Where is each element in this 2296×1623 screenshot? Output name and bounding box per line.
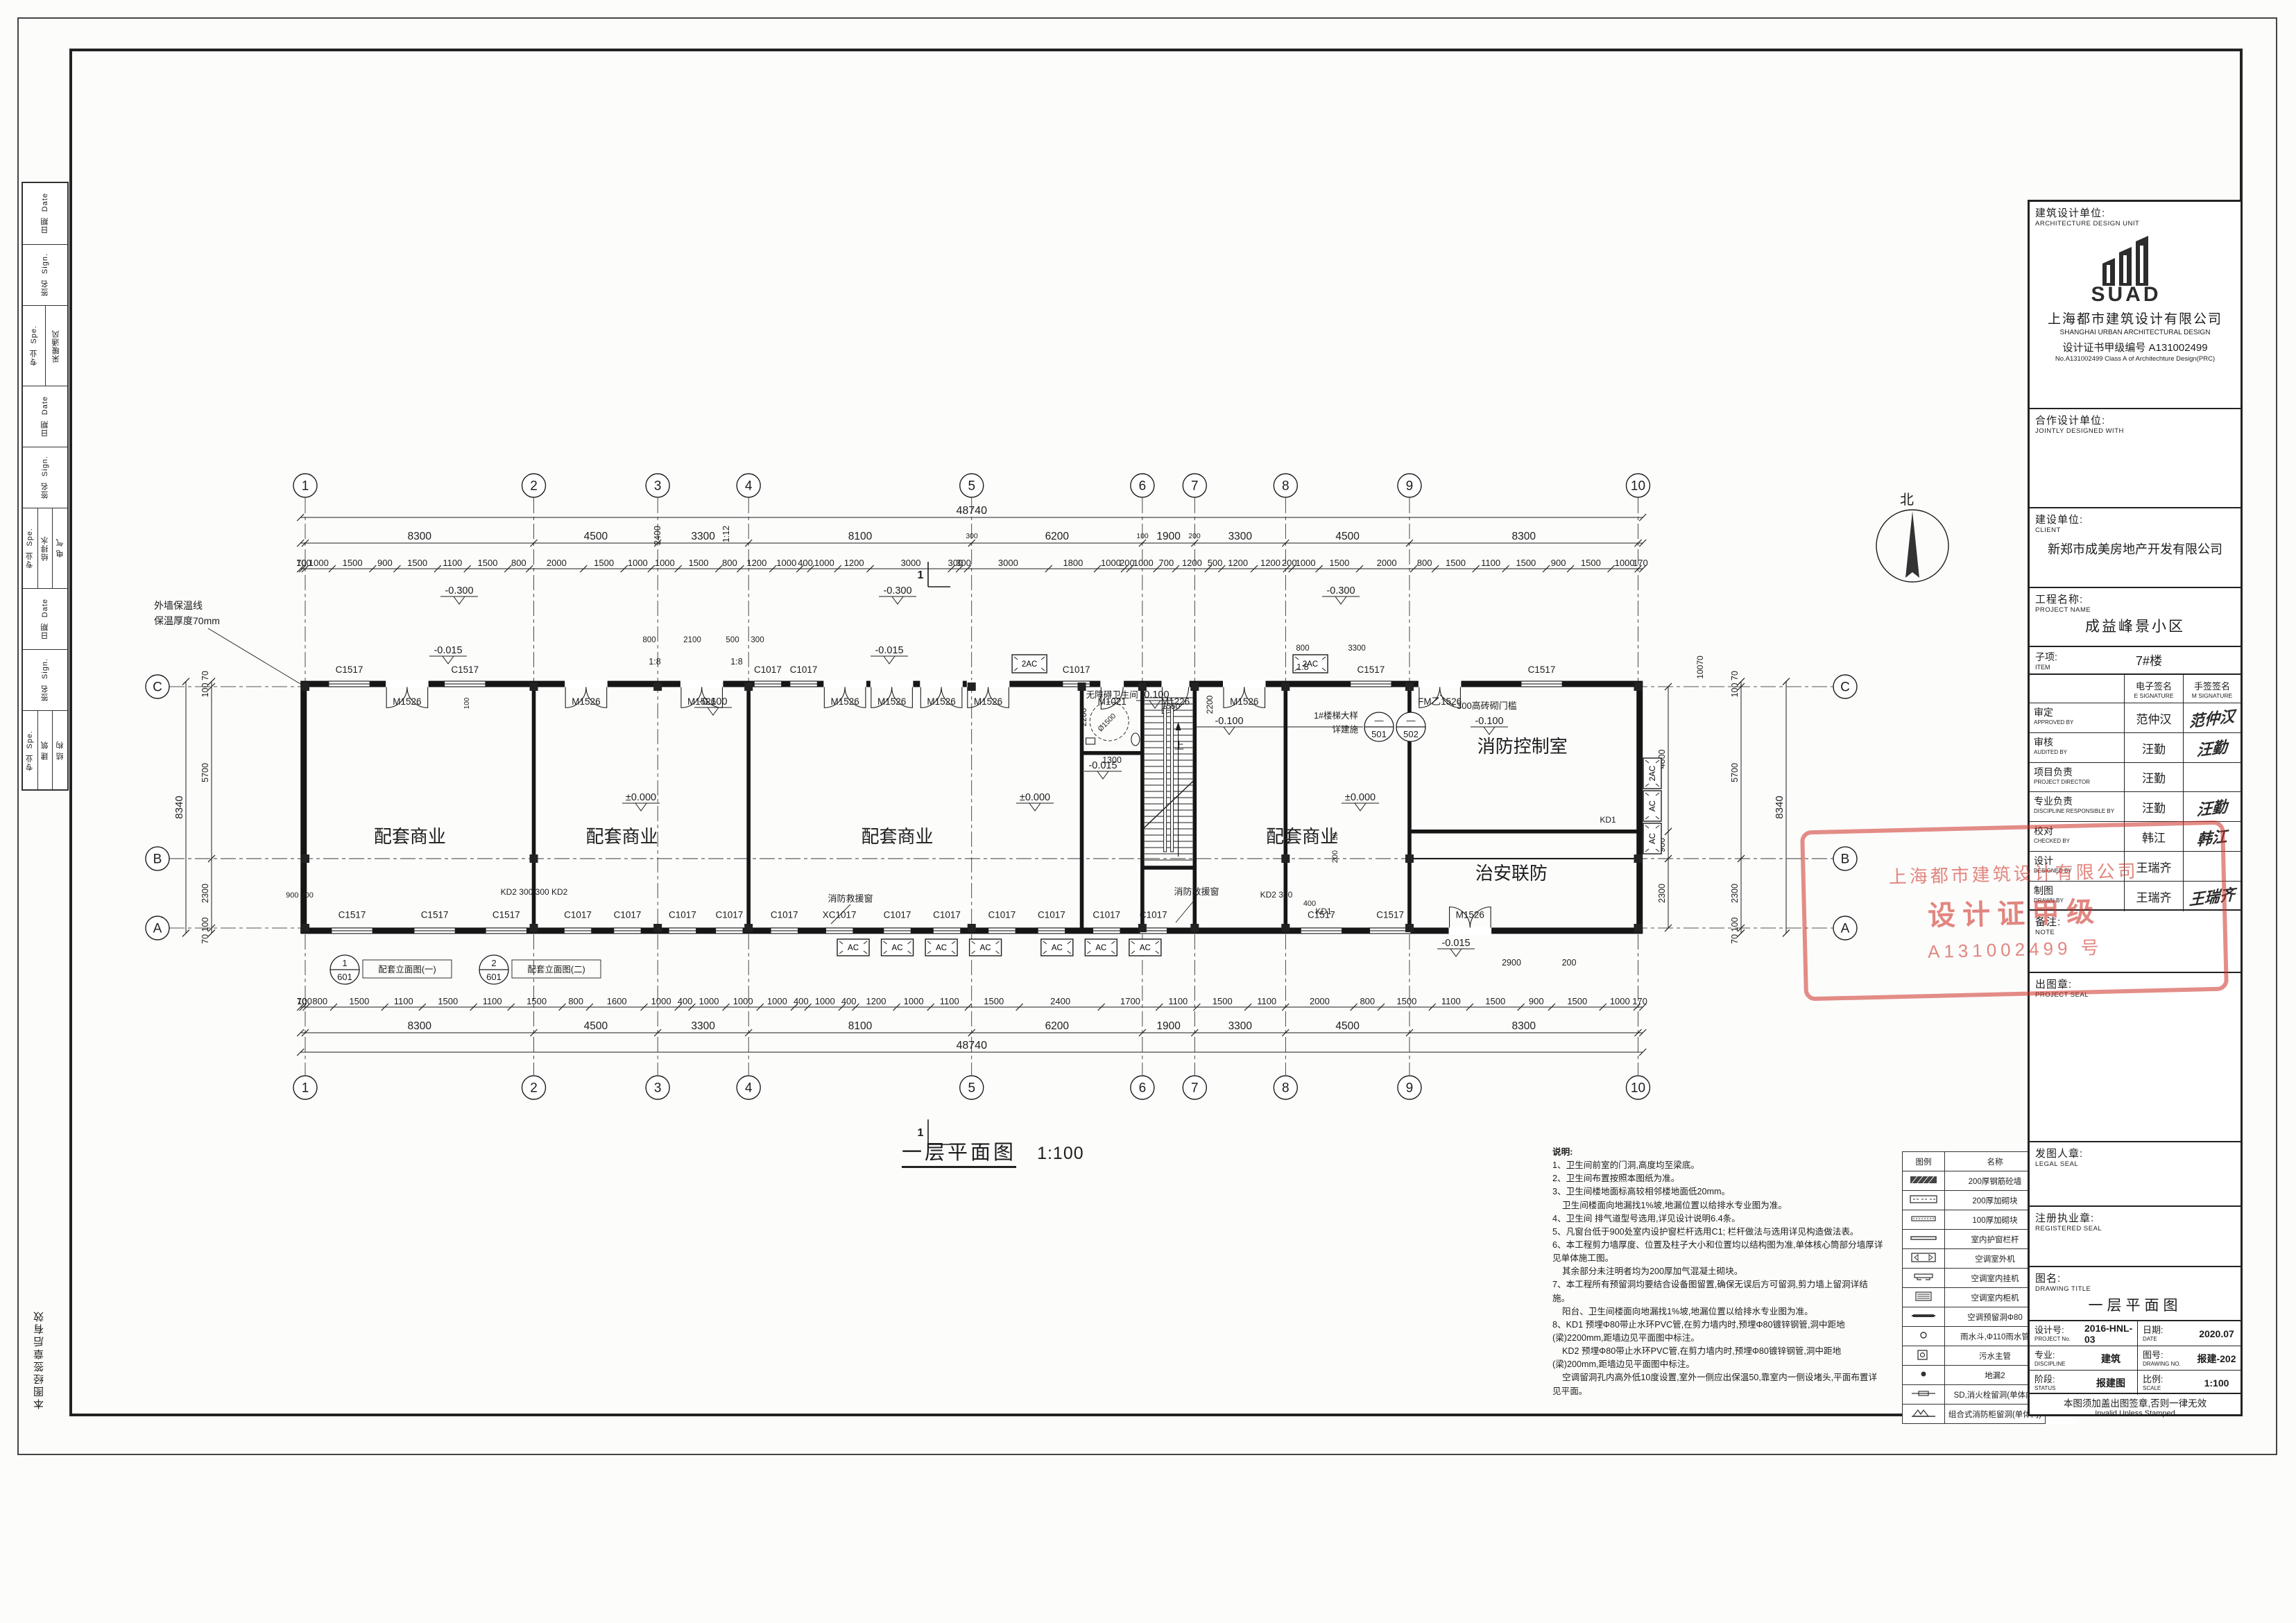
door-gap	[1419, 680, 1462, 688]
door-label: M1526	[1230, 696, 1258, 707]
margin-cell-text: 电 气	[55, 538, 66, 558]
info-label-en: SCALE	[2143, 1385, 2193, 1391]
callout-bottom: 601	[486, 972, 502, 982]
annotation-text: 300	[751, 636, 764, 644]
svg-text:AC: AC	[892, 944, 903, 952]
grid-number: 4	[745, 479, 753, 494]
tb-project-label: 工程名称:	[2030, 588, 2241, 606]
margin-cell: 签名 Sign.	[23, 650, 67, 710]
level-text: -0.100	[1140, 689, 1169, 701]
margin-cell-text: 结 构	[55, 741, 66, 760]
sig-m-signature: 王瑞齐	[2188, 882, 2235, 910]
svg-text:AC: AC	[1649, 800, 1657, 811]
info-label-en: DRAWING NO.	[2143, 1361, 2193, 1367]
suad-logo: SUAD	[2030, 232, 2241, 307]
info-value: 1:100	[2193, 1371, 2241, 1395]
column	[301, 682, 309, 691]
info-value: 2020.07	[2193, 1321, 2241, 1346]
door-label: M1526	[877, 696, 906, 707]
dim-text: 70 100	[200, 918, 210, 944]
margin-note-text: 本图经签章后有效	[32, 1309, 46, 1409]
column	[653, 682, 662, 691]
grid-number: 10	[1631, 1081, 1645, 1096]
sd-icon	[1903, 1385, 1945, 1405]
wall-right	[1636, 682, 1643, 934]
annotation-text: KD2 300 300 KD2	[501, 887, 568, 897]
grid-number: 3	[654, 1081, 662, 1096]
dim-span-text: 3300	[691, 1020, 715, 1032]
dim-text: 100	[297, 996, 312, 1006]
drawing-sheet: 日期 Date签名 Sign.专业 Spe.采暖通风日期 Date签名 Sign…	[0, 0, 2296, 1623]
dim-text: 400	[678, 996, 693, 1006]
margin-cell: 采暖通风	[45, 306, 68, 386]
margin-band: 签名 Sign.	[23, 244, 67, 305]
column	[1634, 855, 1642, 863]
dim-span-text: 4500	[1335, 531, 1360, 542]
dim-text: 3000	[998, 558, 1018, 568]
margin-cell-text: 签名 Sign.	[40, 253, 51, 296]
dim-text: 2300	[1657, 884, 1667, 903]
callout-top: 1	[342, 958, 347, 968]
column	[1138, 924, 1147, 932]
window-label: C1017	[669, 909, 696, 920]
margin-band: 专业 Spe.给排水电 气	[23, 508, 67, 588]
sig-row-discipline-responsible-by: 专业负责DISCIPLINE RESPONSIBLE BY汪勤汪勤	[2030, 791, 2241, 822]
tb-project-en: PROJECT NAME	[2030, 606, 2241, 614]
stair-break	[1143, 780, 1194, 829]
tb-note: 备注: NOTE	[2030, 909, 2241, 972]
grid-number: 7	[1191, 1081, 1199, 1096]
svg-text:AC: AC	[1140, 944, 1151, 952]
door-label: M1526	[572, 696, 600, 707]
tb-joint-label: 合作设计单位:	[2030, 409, 2241, 427]
tb-reg-en: REGISTERED SEAL	[2030, 1225, 2241, 1233]
annotation-text: 200	[1562, 958, 1577, 968]
annotation-text: 2200	[1079, 707, 1088, 726]
dim-text: 1500	[1396, 996, 1416, 1006]
level-text: ±0.000	[1345, 792, 1376, 803]
dim-text: 1600	[607, 996, 627, 1006]
sig-label-en: DISCIPLINE RESPONSIBLE BY	[2034, 808, 2120, 814]
window-label: C1517	[492, 909, 520, 920]
svg-text:AC: AC	[936, 944, 947, 952]
annotation-text: 1:12	[721, 526, 731, 542]
level-text: -0.300	[445, 585, 473, 596]
sig-row-designed-by: 设计DESIGNED BY王瑞齐	[2030, 851, 2241, 882]
sig-label: 校对	[2034, 824, 2120, 838]
annotation-text: 消防救援窗	[1174, 886, 1219, 897]
window-label: C1017	[884, 909, 911, 920]
info-value: 报建图	[2084, 1371, 2137, 1395]
level-text: -0.015	[434, 645, 462, 656]
column	[301, 924, 309, 932]
dim-text: 1500	[1581, 558, 1601, 568]
door-label: FM乙1526	[1418, 696, 1462, 707]
margin-cell: 建 筑	[37, 711, 53, 791]
margin-cell-text: 专业 Spe.	[28, 325, 40, 366]
margin-band: 日期 Date	[23, 386, 67, 447]
door-gap	[1100, 680, 1124, 688]
tb-note-en: NOTE	[2030, 929, 2241, 936]
tb-item: 子项: ITEM 7#楼	[2030, 646, 2241, 673]
wc-toilet	[1131, 733, 1140, 746]
column	[1190, 924, 1199, 932]
window-label: C1517	[1376, 909, 1404, 920]
column	[744, 682, 753, 691]
dim-text: 3000	[901, 558, 921, 568]
tb-cert: 设计证书甲级编号 A131002499	[2030, 340, 2241, 354]
sig-m-signature: 韩江	[2196, 824, 2227, 850]
window-label: C1017	[790, 664, 818, 675]
sig-header-row: 电子签名E SIGNATURE手签签名M SIGNATURE	[2030, 675, 2241, 703]
info-label: 图号:	[2143, 1348, 2193, 1361]
margin-band: 签名 Sign.	[23, 447, 67, 508]
annotation-text: 2200	[1205, 695, 1215, 714]
dim-text: 1000	[1615, 558, 1635, 568]
tb-title-en: DRAWING TITLE	[2030, 1285, 2241, 1293]
dim-span-text: 1900	[1156, 531, 1181, 542]
dim-text: 5700	[200, 763, 210, 782]
column	[744, 924, 753, 932]
dim-text: 1500	[1567, 996, 1587, 1006]
margin-band: 专业 Spe.建 筑结 构	[23, 710, 67, 791]
grid-number: 8	[1282, 1081, 1290, 1096]
tb-signatures: 电子签名E SIGNATURE手签签名M SIGNATURE审定APPROVED…	[2030, 673, 2241, 909]
margin-cell: 日期 Date	[23, 386, 67, 447]
door-label: M1526	[393, 696, 421, 707]
dim-text: 1000	[1101, 558, 1121, 568]
ac-unit-icon: AC	[925, 939, 957, 956]
tb-title-value: 一层平面图	[2030, 1294, 2241, 1315]
dim-text: 100 70	[1730, 671, 1740, 697]
room-label: 治安联防	[1475, 863, 1548, 884]
sig-m-signature: 范仲汉	[2188, 704, 2235, 732]
column	[530, 855, 538, 863]
dim-text: 70 100	[1730, 918, 1740, 944]
dim-text: 1100	[1441, 996, 1461, 1006]
dim-text: 1100	[483, 996, 502, 1006]
column	[1281, 924, 1290, 932]
dim-text: 1100	[1168, 996, 1188, 1006]
annotation-text: 1:8	[730, 657, 742, 667]
annotation-text: 保温厚度70mm	[154, 615, 220, 626]
annotation-text: 1#楼梯大样	[1314, 710, 1358, 721]
grid-number: 2	[530, 479, 538, 494]
dim-text: 1000	[1296, 558, 1316, 568]
sig-m-signature: 汪勤	[2196, 794, 2227, 821]
dim-text: 800	[511, 558, 526, 568]
dim-text: 500	[1208, 558, 1223, 568]
annotation-text: 100	[463, 697, 471, 709]
dim-text: 1000	[651, 996, 671, 1006]
dim-text: 1100	[1481, 558, 1500, 568]
dim-text: 2400	[1050, 996, 1070, 1006]
sig-header-m-en: M SIGNATURE	[2192, 692, 2232, 699]
tb-project-seal: 出图章: PROJECT SEAL	[2030, 972, 2241, 1141]
margin-cell: 日期 Date	[23, 183, 67, 244]
stair-rail	[1171, 706, 1174, 852]
level-text: -0.015	[875, 645, 903, 656]
sig-label: 审核	[2034, 735, 2120, 749]
annotation-text: 800	[642, 636, 656, 644]
sig-label-en: DRAWN BY	[2034, 898, 2120, 904]
dim-text: 700	[1159, 558, 1174, 568]
tb-item-en: ITEM	[2035, 664, 2057, 671]
sig-e-value: 王瑞齐	[2125, 852, 2184, 882]
window-label: C1017	[1038, 909, 1065, 920]
tb-seal-en: PROJECT SEAL	[2030, 991, 2241, 999]
dim-text: 1500	[1516, 558, 1536, 568]
dim-text: 1500	[526, 996, 547, 1006]
info-row: 设计号:PROJECT No.2016-HNL-03日期:DATE2020.07	[2030, 1321, 2241, 1346]
annotation-text: 500	[726, 636, 739, 644]
info-label: 阶段:	[2034, 1372, 2084, 1385]
info-row: 阶段:STATUS报建图比例:SCALE1:100	[2030, 1370, 2241, 1395]
annotation-text: 1:8	[1296, 662, 1308, 672]
level-text: -0.100	[1475, 716, 1503, 727]
dim-text: 1500	[438, 996, 458, 1006]
level-triangle	[1450, 949, 1462, 956]
sig-label-en: PROJECT DIRECTOR	[2034, 779, 2120, 785]
margin-cell: 签名 Sign.	[23, 447, 67, 508]
margin-sign-table: 日期 Date签名 Sign.专业 Spe.采暖通风日期 Date签名 Sign…	[22, 182, 69, 791]
door-gap	[1161, 680, 1189, 688]
column	[1078, 682, 1086, 691]
level-triangle	[1335, 596, 1346, 604]
note-line: 5、凡窗台低于900处室内设护窗栏杆选用C1; 栏杆做法与选用详见构造做法表。	[1552, 1226, 1884, 1239]
margin-band: 日期 Date	[23, 588, 67, 649]
room-label: 消防控制室	[1477, 736, 1568, 757]
column	[1190, 682, 1199, 691]
sig-e-value: 汪勤	[2125, 763, 2184, 793]
dim-text: 900	[1529, 996, 1544, 1006]
dim-text: 1500	[689, 558, 709, 568]
window-label: C1017	[771, 909, 798, 920]
callout-label: 配套立面图(一)	[378, 964, 436, 974]
margin-cell-text: 专业 Spe.	[24, 730, 35, 771]
window-label: C1517	[421, 909, 449, 920]
annotation-text: 300	[966, 532, 978, 540]
ac-unit-icon: AC	[1643, 791, 1661, 821]
tb-seal-label: 出图章:	[2030, 973, 2241, 991]
wc-sink	[1086, 738, 1095, 744]
note-line: 7、本工程所有预留洞均要结合设备图留置,确保无误后方可留洞,剪力墙上留洞详结施。	[1552, 1278, 1884, 1305]
dim-text: 100 70	[200, 671, 210, 697]
tb-title-label: 图名:	[2030, 1267, 2241, 1285]
column	[1281, 682, 1290, 691]
column	[968, 924, 976, 932]
info-row: 专业:DISCIPLINE建筑图号:DRAWING NO.报建-202	[2030, 1346, 2241, 1371]
margin-validity-note: 本图经签章后有效	[32, 1309, 53, 1448]
annotation-text: 外墙保温线	[154, 600, 203, 611]
margin-cell: 专业 Spe.	[23, 508, 37, 588]
info-label-en: DISCIPLINE	[2034, 1361, 2084, 1367]
sig-row-approved-by: 审定APPROVED BY范仲汉范仲汉	[2030, 703, 2241, 733]
level-triangle	[1149, 701, 1160, 708]
tb-info-grid: 设计号:PROJECT No.2016-HNL-03日期:DATE2020.07…	[2030, 1320, 2241, 1393]
dim-text: 1200	[1228, 558, 1248, 568]
sig-label: 专业负责	[2034, 794, 2120, 808]
suad-logo-icon: SUAD	[2090, 232, 2180, 304]
dim-text: 1500	[349, 996, 369, 1006]
svg-text:2AC: 2AC	[1649, 766, 1657, 781]
dim-text: 2000	[1310, 996, 1330, 1006]
sig-m-signature: 汪勤	[2196, 735, 2227, 761]
dim-text: 2000	[547, 558, 567, 568]
column	[301, 855, 309, 863]
annotation-text: 消防救援窗	[828, 893, 873, 904]
level-triangle	[635, 803, 646, 811]
window-label: C1017	[1063, 664, 1090, 675]
level-text: -0.300	[1326, 585, 1355, 596]
margin-band: 日期 Date	[23, 183, 67, 244]
annotation-text: KD1	[1600, 815, 1616, 825]
grid-number: 9	[1406, 1081, 1414, 1096]
tb-joint: 合作设计单位: JOINTLY DESIGNED WITH	[2030, 408, 2241, 507]
annotation-text: 200	[1188, 532, 1201, 540]
door-gap	[920, 680, 963, 688]
dim-span-text: 8300	[408, 531, 432, 542]
info-value: 建筑	[2084, 1346, 2137, 1371]
tb-footer-en: Invalid Unless Stamped	[2030, 1409, 2241, 1418]
dim-text: 900	[1551, 558, 1566, 568]
tb-company-en: SHANGHAI URBAN ARCHITECTURAL DESIGN	[2030, 329, 2241, 336]
level-triangle	[1029, 803, 1040, 811]
room-label: 配套商业	[586, 826, 658, 847]
dim-text: 1500	[1446, 558, 1466, 568]
level-text: -0.100	[699, 696, 727, 707]
dim-text: 1000	[699, 996, 719, 1006]
annotation-text: Ø1500	[1096, 712, 1117, 733]
grid-number: 2	[530, 1081, 538, 1096]
grid-number: 1	[302, 1081, 309, 1096]
wall-stair	[1142, 866, 1194, 870]
tb-footer: 本图须加盖出图签章,否则一律无效 Invalid Unless Stamped	[2030, 1393, 2241, 1418]
tb-client-name: 新郑市成美房地产开发有限公司	[2030, 540, 2241, 558]
dim-span-text: 4500	[584, 1020, 608, 1032]
dim-span-text: 8300	[408, 1020, 432, 1032]
tb-company: 上海都市建筑设计有限公司	[2030, 309, 2241, 327]
dim-text: 1500	[407, 558, 427, 568]
wall-partition	[746, 686, 751, 929]
sig-row-checked-by: 校对CHECKED BY韩江韩江	[2030, 821, 2241, 852]
dim-span-text: 8300	[1511, 531, 1536, 542]
sig-label-en: DESIGNED BY	[2034, 868, 2120, 874]
margin-cell-text: 日期 Date	[40, 599, 51, 639]
dim-text: 900	[377, 558, 393, 568]
tb-reg-label: 注册执业章:	[2030, 1207, 2241, 1225]
svg-text:2AC: 2AC	[1022, 660, 1037, 669]
row-letter: A	[1841, 922, 1850, 936]
door-label: M1526	[927, 696, 955, 707]
margin-cell: 电 气	[52, 508, 67, 588]
dim-text: 1000	[904, 996, 924, 1006]
window-label: C1017	[1140, 909, 1167, 920]
ac-unit-icon: AC	[970, 939, 1002, 956]
svg-text:AC: AC	[848, 944, 859, 952]
dim-text: 1200	[1182, 558, 1202, 568]
dim-text: 300	[956, 558, 971, 568]
dim-text: 1700	[1120, 996, 1140, 1006]
tb-client-label: 建设单位:	[2030, 508, 2241, 526]
dim-overall-text: 8340	[173, 796, 185, 818]
dim-text: 400	[794, 996, 809, 1006]
sig-e-value: 汪勤	[2125, 733, 2184, 763]
dim-text: 1200	[746, 558, 766, 568]
tb-design-unit-label: 建筑设计单位:	[2030, 202, 2241, 220]
annotation-text: 2900	[1502, 958, 1521, 968]
title-block: 建筑设计单位: ARCHITECTURE DESIGN UNIT SUAD 上海…	[2028, 200, 2243, 1416]
level-triangle	[1484, 727, 1495, 735]
dim-span-text: 6200	[1045, 1020, 1070, 1032]
margin-cell: 日期 Date	[23, 589, 67, 649]
callout-top: —	[1407, 715, 1416, 725]
door-gap	[1449, 927, 1492, 934]
grid-number: 4	[745, 1081, 753, 1096]
hole-icon	[1903, 1307, 1945, 1327]
north-needle	[1905, 511, 1919, 578]
rain-icon	[1903, 1327, 1945, 1346]
stair-arrow-head	[1176, 722, 1181, 730]
door-label: M1526	[830, 696, 859, 707]
dim-overall-text: 8340	[1774, 796, 1785, 818]
tb-client-en: CLIENT	[2030, 526, 2241, 534]
sig-row-audited-by: 审核AUDITED BY汪勤汪勤	[2030, 732, 2241, 763]
dim-text: 800	[312, 996, 327, 1006]
margin-cell-text: 签名 Sign.	[40, 658, 51, 701]
dim-text: 1000	[309, 558, 329, 568]
callout-label: 配套立面图(二)	[527, 964, 585, 974]
window-label: C1017	[933, 909, 961, 920]
ac-unit-icon: 2AC	[1643, 758, 1661, 789]
annotation-text: 50	[1332, 832, 1339, 841]
annotation-text: 800	[1296, 644, 1309, 653]
annotation-text: 10070	[1695, 655, 1705, 679]
annotation-text: 1:8	[649, 657, 660, 667]
svg-text:AC: AC	[1052, 944, 1063, 952]
tb-project-name: 成益峰景小区	[2030, 615, 2241, 636]
note-line: 6、本工程剪力墙厚度、位置及柱子大小和位置均以结构图为准,单体核心筒部分墙厚详见…	[1552, 1239, 1884, 1265]
dim-text: 800	[1417, 558, 1432, 568]
rail-icon	[1903, 1230, 1945, 1249]
margin-cell: 签名 Sign.	[23, 245, 67, 305]
ac-unit-icon: AC	[882, 939, 914, 956]
annotation-text: 1300	[1102, 755, 1122, 765]
dim-text: 1000	[1610, 996, 1630, 1006]
dim-text: 1100	[443, 558, 462, 568]
door-label: M1526	[1456, 909, 1484, 920]
dim-span-text: 3300	[1228, 1020, 1253, 1032]
dim-text: 1000	[815, 996, 835, 1006]
annotation-text: KD1	[1315, 907, 1332, 916]
info-label-en: PROJECT No.	[2034, 1336, 2084, 1342]
ac-cab-icon	[1903, 1288, 1945, 1307]
level-text: -0.300	[883, 585, 911, 596]
dim-overall-text: 48740	[956, 1040, 987, 1051]
dim-span-text: 8100	[848, 531, 873, 542]
note-line: 阳台、卫生间楼面向地漏找1%坡,地漏位置以给排水专业图为准。	[1552, 1305, 1884, 1319]
window-label: C1017	[715, 909, 743, 920]
dim-text: 2300	[200, 884, 210, 903]
level-triangle	[454, 596, 465, 604]
dim-text: 1200	[844, 558, 864, 568]
info-label: 比例:	[2143, 1372, 2193, 1385]
tb-legal-en: LEGAL SEAL	[2030, 1160, 2241, 1168]
tb-legal-seal: 发图人章: LEGAL SEAL	[2030, 1141, 2241, 1205]
ac-unit-icon: AC	[1129, 939, 1161, 956]
callout-top: 2	[491, 958, 496, 968]
info-label-en: DATE	[2143, 1336, 2193, 1342]
